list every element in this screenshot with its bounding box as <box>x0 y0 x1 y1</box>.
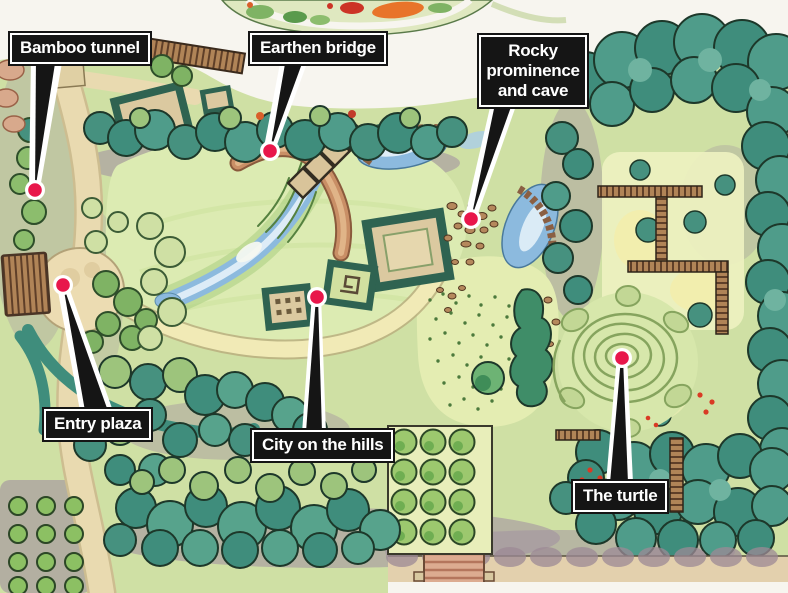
callout-bamboo-tunnel: Bamboo tunnel <box>10 33 150 64</box>
illustrated-garden-map: Bamboo tunnel Earthen bridge Rocky promi… <box>0 0 788 593</box>
marker-entry-plaza <box>53 275 73 295</box>
callout-entry-plaza: Entry plaza <box>44 409 151 440</box>
garden-map-illustration <box>0 0 788 593</box>
callout-earthen-bridge: Earthen bridge <box>250 33 386 64</box>
orchard-right <box>388 426 492 554</box>
marker-city-on-the-hills <box>307 287 327 307</box>
marker-the-turtle <box>612 348 632 368</box>
marker-bamboo-tunnel <box>25 180 45 200</box>
entry-pavilion-roof <box>2 253 50 316</box>
callout-the-turtle: The turtle <box>573 481 667 512</box>
marker-rocky-prominence <box>461 209 481 229</box>
marker-earthen-bridge <box>260 141 280 161</box>
callout-rocky-prominence-and-cave: Rocky prominence and cave <box>479 35 587 107</box>
callout-city-on-the-hills: City on the hills <box>252 430 393 461</box>
